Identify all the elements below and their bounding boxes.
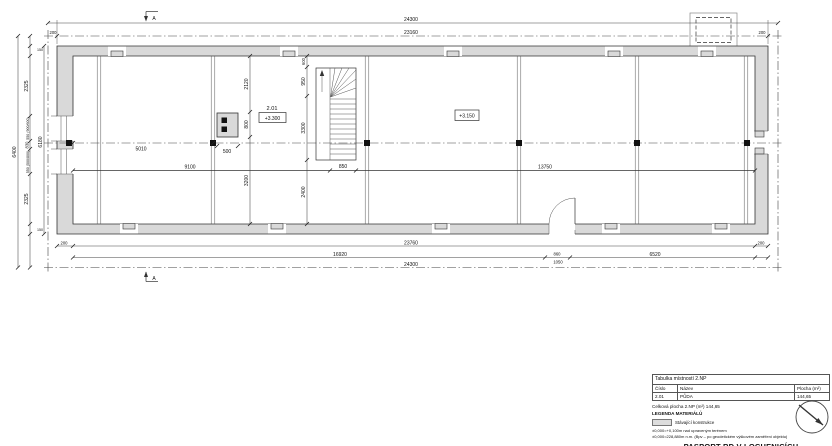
material-swatch [652, 419, 672, 426]
column-marker [364, 140, 370, 146]
room-name-cell: PŮDA [677, 393, 794, 400]
dim-label: 6400 [12, 146, 18, 157]
right-wall-recess [754, 131, 769, 154]
elevation-note-2: ±0,000=228,880m n.m. (Bpv – po geodetick… [652, 434, 802, 439]
section-marker-a-top: A [144, 12, 158, 23]
drawing-sheet: 2.01 +3.300 +3.150 2120 800 3200 600 950… [0, 0, 832, 446]
dim-label: 1050 [553, 260, 563, 265]
dim-left: 6400 2325 550 (900/600) 830 550 (500/800… [12, 34, 46, 270]
room-table-title: Tabulka místností 2.NP [653, 375, 829, 384]
dim-label: 2325 [24, 80, 30, 91]
frame-lines [97, 56, 748, 224]
dim-axis: 5010 500 9100 13750 850 [71, 141, 757, 173]
dim-label: 24300 [404, 17, 418, 23]
level-label-3150: +3.150 [455, 110, 479, 121]
section-marker-a-bottom: A [144, 272, 158, 283]
dim-label: 2120 [244, 78, 250, 89]
dim-chain-mid: 2120 800 3200 [244, 54, 252, 226]
north-arrow-icon [792, 396, 832, 436]
stairs [316, 68, 356, 160]
dim-label: 13750 [538, 165, 552, 171]
section-label: A [152, 276, 156, 282]
dim-label: 550 (500/800) [26, 151, 30, 173]
floor-plan-drawing: 2.01 +3.300 +3.150 2120 800 3200 600 950… [0, 0, 832, 370]
dim-label: 200 [61, 241, 69, 246]
dim-label: 550 (900/600) [26, 117, 30, 139]
column-marker [744, 140, 750, 146]
window-left-lower [51, 149, 74, 174]
drawing-title: PASPORT RD V LOCHENICÍCH [652, 442, 830, 446]
room-no-cell: 2.01 [653, 393, 677, 400]
dashed-box-chimney [690, 13, 737, 47]
room-label-201: 2.01 +3.300 [259, 106, 286, 123]
column-marker [66, 140, 72, 146]
dim-label: 24300 [404, 262, 418, 268]
dim-chain-stairs: 600 950 3300 2400 [301, 54, 309, 226]
window-left-upper [51, 116, 74, 141]
title-block: Tabulka místností 2.NP Číslo Název Ploch… [652, 374, 830, 446]
chimney [217, 113, 238, 137]
dim-label: 3300 [301, 122, 307, 133]
col-cislo: Číslo [653, 385, 677, 392]
room-number: 2.01 [267, 106, 278, 112]
level-label: +3.300 [265, 116, 281, 122]
level-label: +3.150 [459, 114, 475, 120]
door [549, 198, 575, 235]
dim-label: 800 [244, 120, 250, 129]
dim-label: 23760 [404, 241, 418, 247]
col-nazev: Název [677, 385, 794, 392]
dim-label: 2400 [301, 186, 307, 197]
room-table-header: Číslo Název Plocha (m²) [653, 384, 829, 392]
dim-label: 200 [759, 30, 767, 35]
dim-label: 9100 [184, 165, 195, 171]
column-marker [516, 140, 522, 146]
dim-label: 200 [758, 241, 766, 246]
dim-label: 150 [37, 228, 43, 232]
column-marker [634, 140, 640, 146]
dim-label: 600 [301, 57, 306, 65]
dim-label: 3200 [244, 175, 250, 186]
dim-label: 16920 [333, 252, 347, 258]
dim-bottom: 200 23760 200 16920 860 1050 6520 24300 [55, 241, 770, 269]
dim-label: 6520 [649, 252, 660, 258]
section-label: A [152, 16, 156, 22]
dim-label: 950 [301, 77, 307, 86]
dim-top: 24300 23160 200 200 [46, 17, 780, 38]
dim-label: 150 [37, 48, 43, 52]
legend-item-label: Stávající konstrukce [675, 420, 714, 425]
dim-label: 830 [25, 141, 30, 149]
roof-outline [44, 30, 784, 272]
dim-label: 850 [339, 164, 348, 170]
dim-label: 23160 [404, 30, 418, 36]
dim-label: 500 [223, 149, 232, 155]
exterior-walls [57, 46, 768, 234]
dim-label: 200 [50, 30, 58, 35]
axis-line [44, 140, 782, 146]
dim-label: 5010 [135, 147, 146, 153]
dim-label: 6180 [38, 136, 44, 147]
dim-label: 860 [554, 252, 562, 257]
dim-label: 2325 [24, 193, 30, 204]
col-plocha: Plocha (m²) [794, 385, 829, 392]
